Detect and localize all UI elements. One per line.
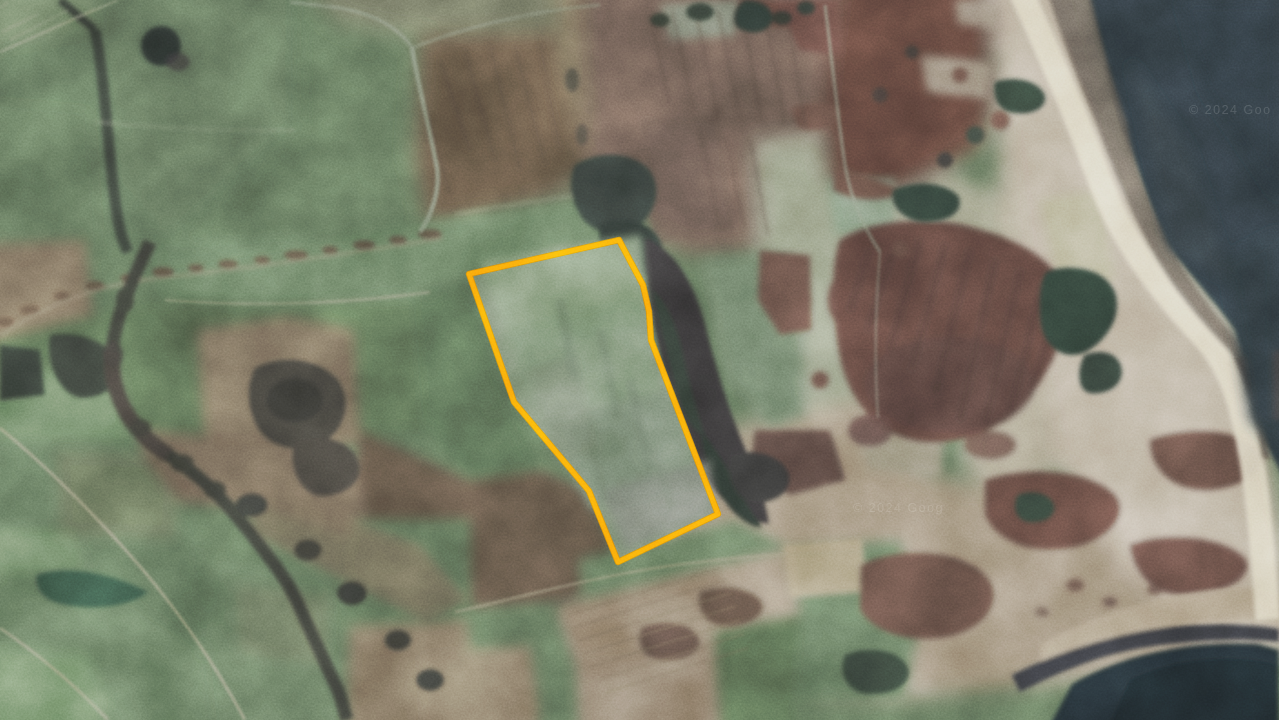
svg-text:© 2024 Goog: © 2024 Goog xyxy=(853,501,944,515)
svg-text:© 2024 Goo: © 2024 Goo xyxy=(1189,103,1272,117)
